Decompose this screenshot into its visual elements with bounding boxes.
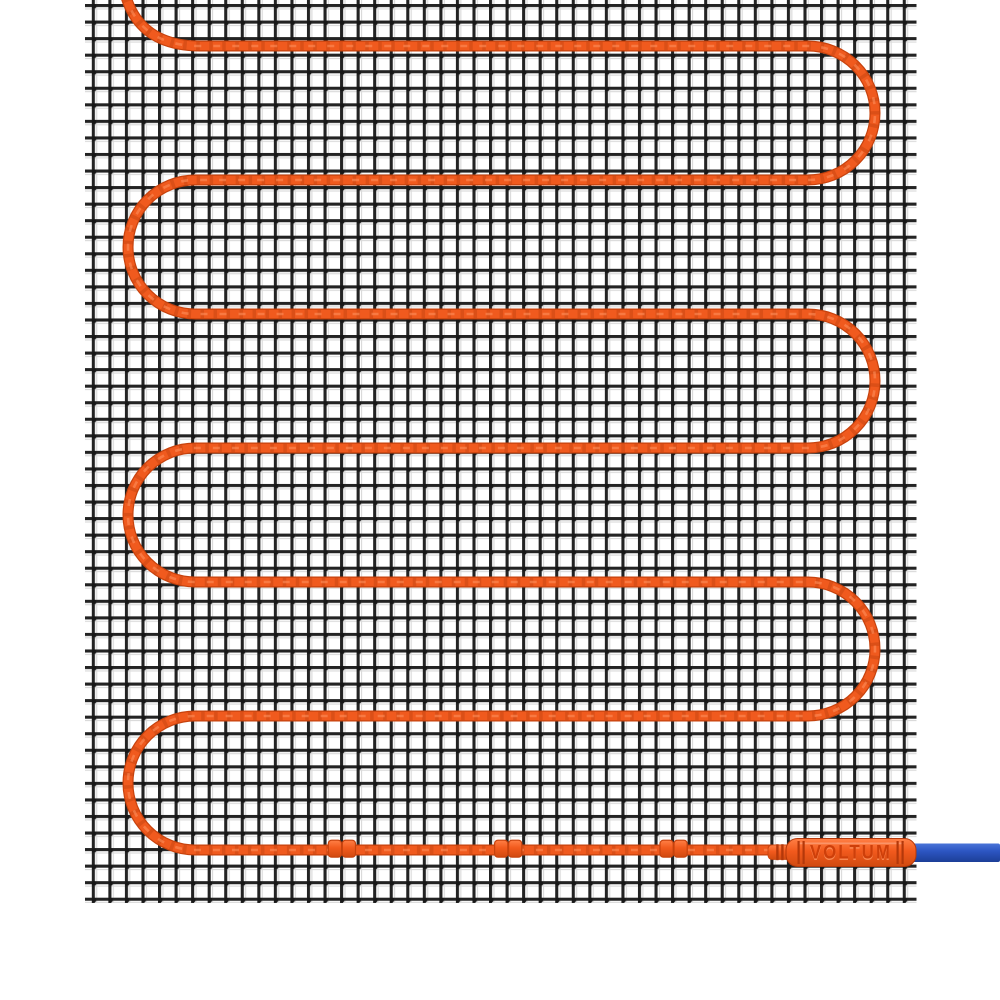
cable-clip-bead <box>328 840 341 857</box>
cable-clip-bead <box>495 840 508 857</box>
brand-label: VOLTUM <box>810 843 892 864</box>
cable-clip-bead <box>509 840 522 857</box>
connector-neck-ridge <box>781 844 783 860</box>
connector-ridge <box>803 841 805 864</box>
connector-neck-ridge <box>776 844 778 860</box>
cable-clip <box>660 840 687 857</box>
cable-clip-bead <box>342 840 355 857</box>
cable-clip <box>328 840 355 857</box>
scene-svg: VOLTUM VOLTUM <box>0 0 1000 1000</box>
cable-clip <box>495 840 522 857</box>
cable-clip-bead <box>674 840 687 857</box>
connector-ridge <box>897 841 899 864</box>
power-connector: VOLTUM VOLTUM <box>768 839 916 867</box>
connector-ridge <box>798 841 800 864</box>
connector-ridge <box>902 841 904 864</box>
cold-lead-cable <box>906 844 1000 863</box>
heating-mat-scene: VOLTUM VOLTUM <box>0 0 1000 1000</box>
cable-clip-bead <box>660 840 673 857</box>
